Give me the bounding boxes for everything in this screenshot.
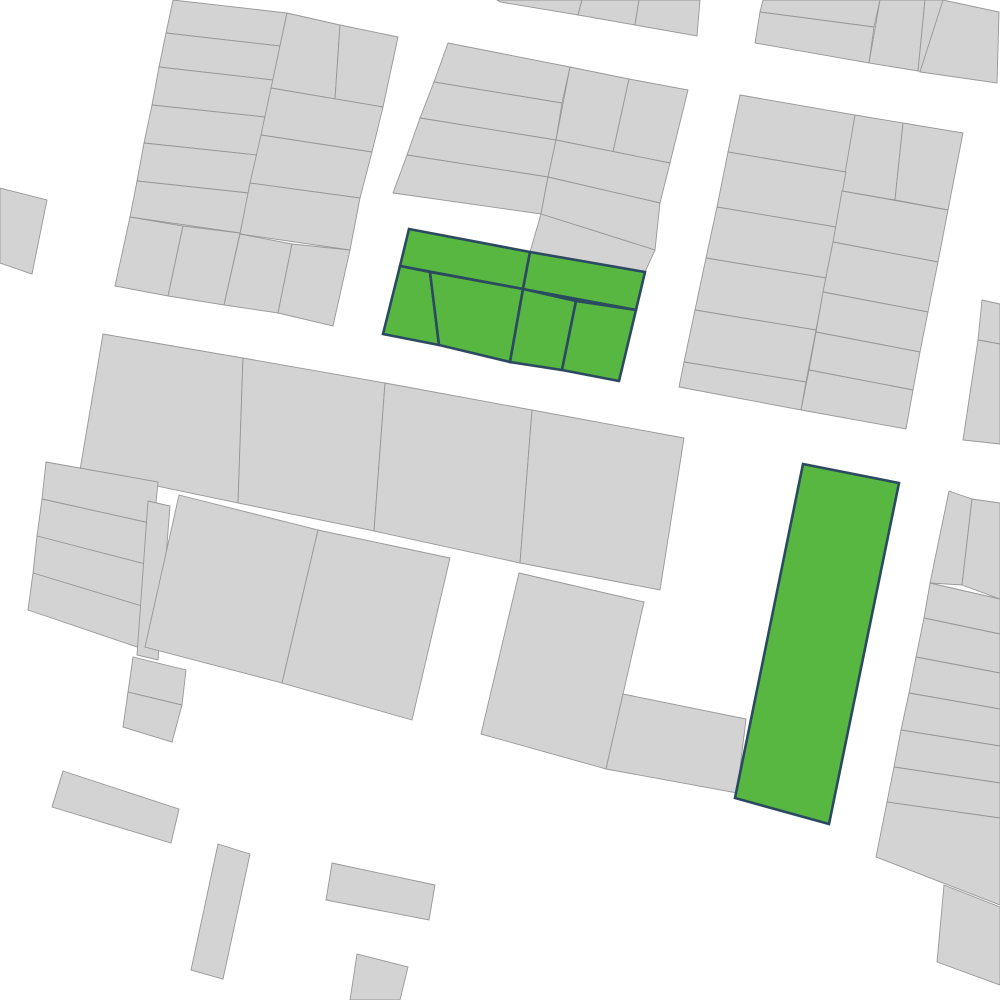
west-edge-small bbox=[0, 188, 47, 274]
selected-parcel[interactable] bbox=[562, 301, 636, 381]
right-edge-mid bbox=[963, 300, 1000, 444]
block-west-strips bbox=[28, 462, 158, 648]
parcel[interactable] bbox=[52, 771, 179, 843]
south-bar-3 bbox=[326, 863, 435, 920]
block-southeast-column bbox=[876, 491, 1000, 905]
selected-parcel-east bbox=[735, 464, 899, 824]
south-bar-4 bbox=[350, 954, 408, 1000]
parcel[interactable] bbox=[876, 802, 1000, 905]
south-strip bbox=[606, 694, 746, 793]
parcel[interactable] bbox=[635, 0, 700, 36]
block-northwest bbox=[115, 0, 398, 326]
parcel[interactable] bbox=[497, 0, 582, 15]
parcel[interactable] bbox=[895, 123, 963, 210]
parcel[interactable] bbox=[578, 0, 639, 25]
southwest-small-stack bbox=[123, 657, 186, 742]
block-northeast bbox=[755, 0, 999, 83]
parcel[interactable] bbox=[191, 844, 250, 979]
parcel[interactable] bbox=[520, 410, 684, 590]
parcel[interactable] bbox=[374, 383, 532, 563]
parcel-map[interactable] bbox=[0, 0, 1000, 1000]
parcel[interactable] bbox=[606, 694, 746, 793]
parcel[interactable] bbox=[326, 863, 435, 920]
selected-parcel[interactable] bbox=[430, 272, 523, 362]
block-east-central bbox=[679, 95, 963, 429]
parcel[interactable] bbox=[335, 25, 398, 107]
south-bar-1 bbox=[52, 771, 179, 843]
parcel[interactable] bbox=[963, 340, 1000, 444]
parcel[interactable] bbox=[350, 954, 408, 1000]
parcel[interactable] bbox=[0, 188, 47, 274]
block-north-top bbox=[497, 0, 700, 36]
parcel[interactable] bbox=[978, 300, 1000, 344]
selected-parcel[interactable] bbox=[735, 464, 899, 824]
parcel[interactable] bbox=[238, 358, 385, 531]
map-viewport[interactable] bbox=[0, 0, 1000, 1000]
south-bar-2 bbox=[191, 844, 250, 979]
